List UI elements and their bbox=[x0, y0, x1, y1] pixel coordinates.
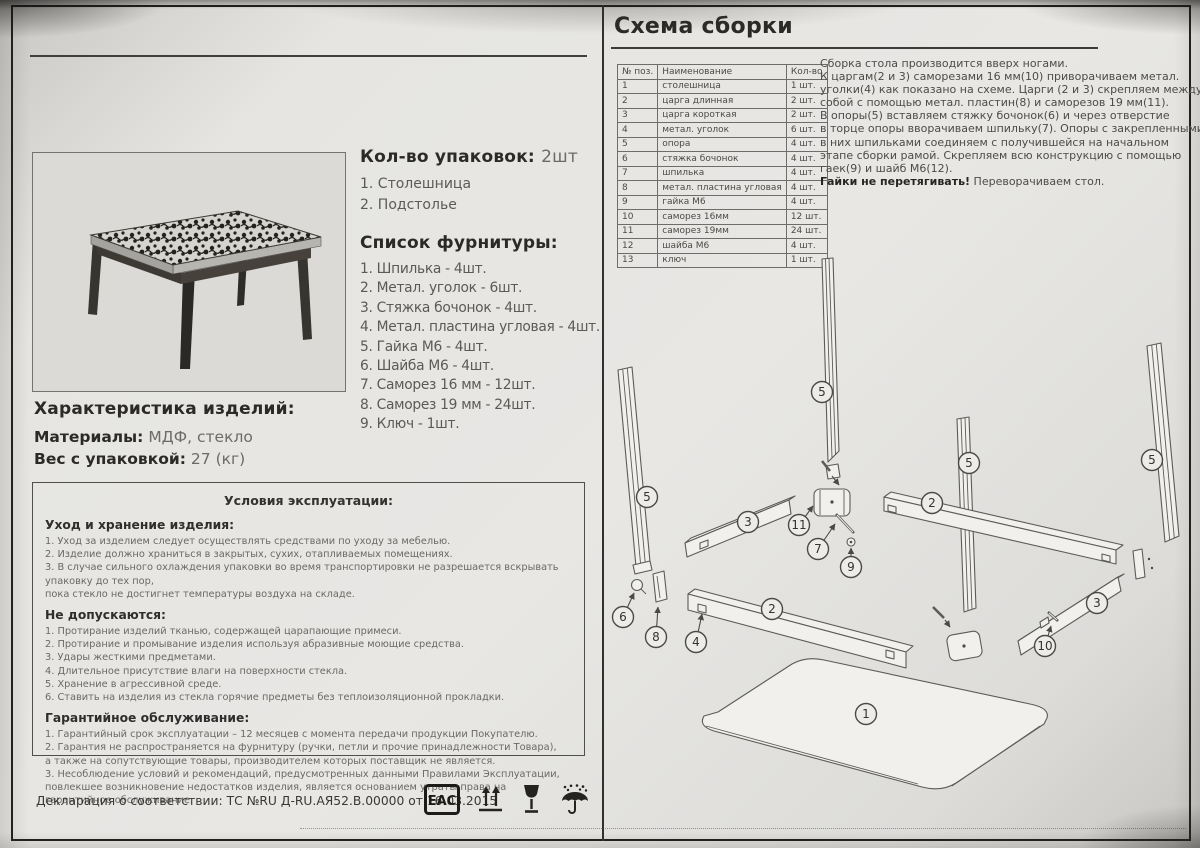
instruction-line: В опоры(5) вставляем стяжку бочонок(6) и… bbox=[820, 109, 1192, 122]
product-photo bbox=[32, 152, 346, 392]
instruction-line: уголки(4) как показано на схеме. Царги (… bbox=[820, 83, 1192, 96]
materials-line: Материалы: МДФ, стекло bbox=[34, 428, 295, 446]
parts-table-row: 2царга длинная2 шт. bbox=[618, 94, 828, 109]
barrel-nut-center bbox=[814, 489, 850, 516]
scan-fold-line bbox=[300, 828, 1186, 829]
care-line: 3. В случае сильного охлаждения упаковки… bbox=[45, 561, 572, 587]
corner-plate-left bbox=[653, 571, 667, 602]
svg-text:2: 2 bbox=[768, 602, 776, 616]
parts-table-row: 11саморез 19мм24 шт. bbox=[618, 224, 828, 239]
instruction-line: в них шпильками соединяем с получившейся… bbox=[820, 136, 1192, 149]
packages-label: Кол-во упаковок: bbox=[360, 147, 535, 167]
parts-table-header: № поз. Наименование Кол-во bbox=[618, 65, 828, 80]
materials-label: Материалы: bbox=[34, 428, 143, 446]
weight-line: Вес с упаковкой: 27 (кг) bbox=[34, 450, 295, 468]
eac-mark-icon: ЕАС bbox=[424, 784, 460, 815]
care-lines: 1. Уход за изделием следует осуществлять… bbox=[45, 535, 572, 601]
hardware-item: 7. Саморез 16 мм - 12шт. bbox=[360, 376, 602, 395]
svg-text:5: 5 bbox=[643, 490, 651, 504]
diagram-callout-5: 5 bbox=[1142, 450, 1163, 471]
screw-middle bbox=[933, 607, 950, 627]
forbidden-line: 4. Длительное присутствие влаги на повер… bbox=[45, 665, 572, 678]
packages-count: 2шт bbox=[541, 147, 578, 167]
parts-table-row: 10саморез 16мм12 шт. bbox=[618, 210, 828, 225]
parts-table-row: 5опора4 шт. bbox=[618, 137, 828, 152]
fragile-glass-icon bbox=[521, 784, 542, 814]
parts-table-row: 8метал. пластина угловая4 шт. bbox=[618, 181, 828, 196]
hardware-item: 8. Саморез 19 мм - 24шт. bbox=[360, 396, 602, 415]
diagram-callout-7: 7 bbox=[808, 524, 836, 560]
hardware-item: 3. Стяжка бочонок - 4шт. bbox=[360, 299, 602, 318]
nut-m6 bbox=[847, 538, 855, 546]
hardware-item: 9. Ключ - 1шт. bbox=[360, 415, 602, 434]
hardware-item: 4. Метал. пластина угловая - 4шт. bbox=[360, 318, 602, 337]
note-warning: Гайки не перетягивать! bbox=[820, 175, 970, 188]
diagram-callout-11: 11 bbox=[789, 506, 814, 536]
care-line: 2. Изделие должно храниться в закрытых, … bbox=[45, 548, 572, 561]
hardware-item: 1. Шпилька - 4шт. bbox=[360, 260, 602, 279]
warranty-heading: Гарантийное обслуживание: bbox=[45, 711, 572, 725]
hardware-section: Список фурнитуры: 1. Шпилька - 4шт.2. Ме… bbox=[360, 233, 602, 435]
characteristics-heading: Характеристика изделий: bbox=[34, 399, 295, 419]
weight-value: 27 (кг) bbox=[191, 450, 245, 468]
packages-list: 1. Столешница2. Подстолье bbox=[360, 174, 590, 216]
short-rail-right bbox=[1018, 574, 1124, 655]
leg-part-left bbox=[618, 367, 652, 574]
svg-text:5: 5 bbox=[1148, 453, 1156, 467]
warranty-line: а также на сопутствующие товары, произво… bbox=[45, 755, 572, 768]
svg-text:10: 10 bbox=[1037, 639, 1052, 653]
weight-label: Вес с упаковкой: bbox=[34, 450, 186, 468]
forbidden-line: 3. Удары жесткими предметами. bbox=[45, 651, 572, 664]
this-side-up-icon bbox=[477, 785, 504, 813]
keep-dry-icon bbox=[559, 784, 591, 814]
diagram-callout-3: 3 bbox=[738, 512, 759, 533]
packages-section: Кол-во упаковок: 2шт 1. Столешница2. Под… bbox=[360, 147, 590, 216]
parts-table-row: 6стяжка бочонок4 шт. bbox=[618, 152, 828, 167]
parts-table: № поз. Наименование Кол-во 1столешница1 … bbox=[617, 64, 828, 268]
parts-table-row: 1столешница1 шт. bbox=[618, 79, 828, 94]
svg-text:8: 8 bbox=[652, 630, 660, 644]
assembly-diagram: 555522331117968410 bbox=[604, 246, 1192, 804]
note-rest: Переворачиваем стол. bbox=[970, 175, 1104, 188]
diagram-callout-8: 8 bbox=[646, 607, 667, 648]
svg-text:ЕАС: ЕАС bbox=[428, 794, 456, 809]
certification-icons: ЕАС bbox=[424, 778, 591, 820]
hardware-item: 6. Шайба М6 - 4шт. bbox=[360, 357, 602, 376]
parts-table-row: 3царга короткая2 шт. bbox=[618, 108, 828, 123]
forbidden-heading: Не допускаются: bbox=[45, 608, 572, 622]
diagram-callout-2: 2 bbox=[762, 599, 783, 620]
page-title: Схема сборки bbox=[614, 14, 793, 39]
parts-table-row: 7шпилька4 шт. bbox=[618, 166, 828, 181]
stud-pin bbox=[836, 514, 854, 533]
hardware-item: 2. Метал. уголок - 6шт. bbox=[360, 279, 602, 298]
diagram-callout-5: 5 bbox=[812, 382, 833, 403]
svg-text:4: 4 bbox=[692, 635, 700, 649]
instruction-line: в торце опоры вворачиваем шпильку(7). Оп… bbox=[820, 122, 1192, 135]
svg-text:1: 1 bbox=[862, 707, 870, 721]
instruction-line: собой с помощью метал. пластин(8) и само… bbox=[820, 96, 1192, 109]
warranty-line: 1. Гарантийный срок эксплуатации – 12 ме… bbox=[45, 728, 572, 741]
instruction-line: Сборка стола производится вверх ногами. bbox=[820, 57, 1192, 70]
leg-part-top bbox=[822, 258, 840, 479]
instruction-lines: Сборка стола производится вверх ногами.К… bbox=[820, 57, 1192, 175]
svg-text:11: 11 bbox=[791, 518, 806, 532]
forbidden-line: 5. Хранение в агрессивной среде. bbox=[45, 678, 572, 691]
svg-text:6: 6 bbox=[619, 610, 627, 624]
warranty-line: 2. Гарантия не распространяется на фурни… bbox=[45, 741, 572, 754]
left-top-rule bbox=[30, 55, 587, 57]
instruction-line: гаек(9) и шайб М6(12). bbox=[820, 162, 1192, 175]
conditions-care-section: Уход и хранение изделия: 1. Уход за изде… bbox=[45, 518, 572, 601]
hardware-list: 1. Шпилька - 4шт.2. Метал. уголок - 6шт.… bbox=[360, 260, 602, 435]
package-item: 1. Столешница bbox=[360, 174, 590, 195]
long-rail-lower bbox=[688, 589, 913, 668]
svg-text:5: 5 bbox=[818, 385, 826, 399]
diagram-callout-4: 4 bbox=[686, 614, 707, 653]
operating-conditions-box: Условия эксплуатации: Уход и хранение из… bbox=[32, 482, 585, 756]
forbidden-line: 6. Ставить на изделия из стекла горячие … bbox=[45, 691, 572, 704]
svg-text:7: 7 bbox=[814, 542, 822, 556]
packages-heading: Кол-во упаковок: 2шт bbox=[360, 147, 590, 167]
svg-text:3: 3 bbox=[744, 515, 752, 529]
materials-value: МДФ, стекло bbox=[148, 428, 253, 446]
assembly-instructions: Сборка стола производится вверх ногами.К… bbox=[820, 57, 1192, 188]
care-heading: Уход и хранение изделия: bbox=[45, 518, 572, 532]
conditions-title: Условия эксплуатации: bbox=[45, 493, 572, 508]
svg-text:3: 3 bbox=[1093, 596, 1101, 610]
title-underline bbox=[611, 47, 1098, 49]
instruction-line: этапе сборки рамой. Скрепляем всю констр… bbox=[820, 149, 1192, 162]
care-line: 1. Уход за изделием следует осуществлять… bbox=[45, 535, 572, 548]
diagram-callout-5: 5 bbox=[959, 453, 980, 474]
long-rail-upper bbox=[884, 492, 1123, 564]
parts-table-body: 1столешница1 шт.2царга длинная2 шт.3царг… bbox=[618, 79, 828, 268]
hardware-item: 5. Гайка М6 - 4шт. bbox=[360, 338, 602, 357]
barrel-nut-left bbox=[632, 580, 647, 595]
col-name: Наименование bbox=[658, 65, 787, 80]
instruction-line: К царгам(2 и 3) саморезами 16 мм(10) при… bbox=[820, 70, 1192, 83]
tabletop-part bbox=[702, 659, 1047, 789]
instruction-note: Гайки не перетягивать! Переворачиваем ст… bbox=[820, 175, 1192, 188]
svg-text:2: 2 bbox=[928, 496, 936, 510]
diagram-callout-1: 1 bbox=[856, 704, 877, 725]
diagram-callout-2: 2 bbox=[922, 493, 943, 514]
hardware-heading: Список фурнитуры: bbox=[360, 233, 602, 253]
svg-text:5: 5 bbox=[965, 456, 973, 470]
table-photo-drawing bbox=[33, 153, 342, 388]
diagram-callout-5: 5 bbox=[637, 487, 658, 508]
svg-text:9: 9 bbox=[847, 560, 855, 574]
care-line: пока стекло не достигнет температуры воз… bbox=[45, 588, 572, 601]
assembly-instruction-sheet: Кол-во упаковок: 2шт 1. Столешница2. Под… bbox=[0, 0, 1200, 848]
diagram-callout-6: 6 bbox=[613, 593, 635, 628]
characteristics-section: Характеристика изделий: Материалы: МДФ, … bbox=[34, 399, 295, 468]
parts-table-row: 4метал. уголок6 шт. bbox=[618, 123, 828, 138]
forbidden-line: 2. Протирание и промывание изделия испол… bbox=[45, 638, 572, 651]
diagram-callout-3: 3 bbox=[1087, 593, 1108, 614]
conditions-forbidden-section: Не допускаются: 1. Протирание изделий тк… bbox=[45, 608, 572, 704]
package-item: 2. Подстолье bbox=[360, 195, 590, 216]
forbidden-line: 1. Протирание изделий тканью, содержащей… bbox=[45, 625, 572, 638]
diagram-callout-9: 9 bbox=[841, 548, 862, 578]
parts-table-row: 9гайка М64 шт. bbox=[618, 195, 828, 210]
forbidden-lines: 1. Протирание изделий тканью, содержащей… bbox=[45, 625, 572, 704]
col-position: № поз. bbox=[618, 65, 658, 80]
barrel-nut-lower bbox=[946, 630, 983, 661]
